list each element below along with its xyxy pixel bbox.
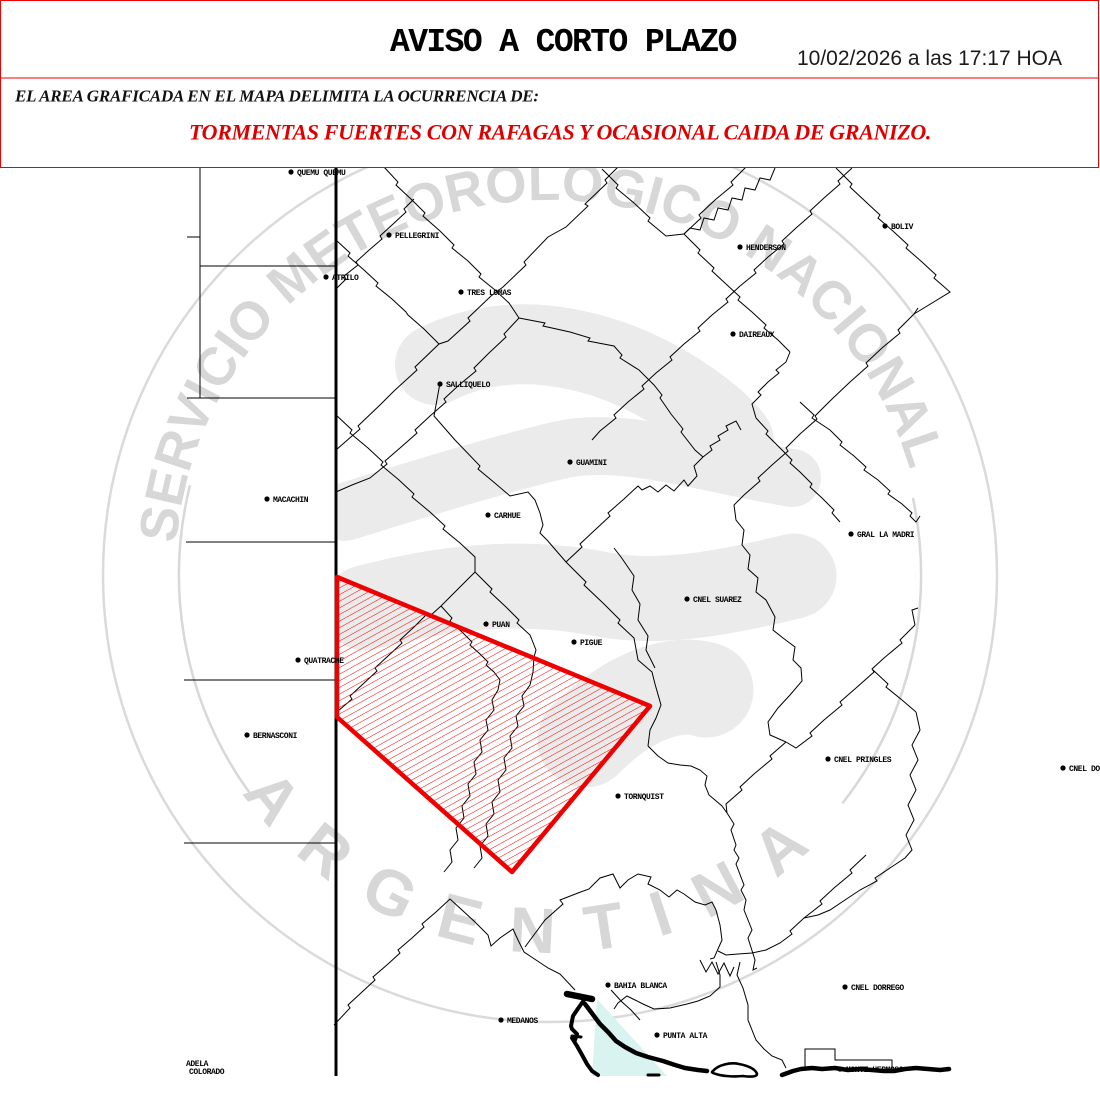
svg-text:TORNQUIST: TORNQUIST bbox=[624, 793, 664, 802]
svg-text:CNEL DORREGO: CNEL DORREGO bbox=[851, 984, 904, 993]
svg-text:HENDERSON: HENDERSON bbox=[746, 244, 786, 253]
svg-text:AVISO A CORTO PLAZO: AVISO A CORTO PLAZO bbox=[390, 24, 737, 61]
svg-text:COLORADO: COLORADO bbox=[189, 1068, 225, 1077]
svg-text:PIGUE: PIGUE bbox=[580, 639, 603, 648]
svg-text:GRAL LA MADRI: GRAL LA MADRI bbox=[857, 531, 915, 540]
svg-text:DAIREAUX: DAIREAUX bbox=[739, 331, 775, 340]
svg-text:10/02/2026 a las 17:17 HOA: 10/02/2026 a las 17:17 HOA bbox=[797, 47, 1062, 70]
svg-text:BOLIV: BOLIV bbox=[891, 223, 914, 232]
svg-text:PELLEGRINI: PELLEGRINI bbox=[395, 232, 440, 241]
svg-text:QUEMU QUEMU: QUEMU QUEMU bbox=[297, 169, 346, 178]
svg-text:CNEL PRINGLES: CNEL PRINGLES bbox=[834, 756, 892, 765]
svg-text:BAHIA BLANCA: BAHIA BLANCA bbox=[614, 982, 667, 991]
svg-text:MACACHIN: MACACHIN bbox=[273, 496, 309, 505]
svg-text:MEDANOS: MEDANOS bbox=[507, 1017, 538, 1026]
svg-text:TORMENTAS FUERTES CON RAFAGAS: TORMENTAS FUERTES CON RAFAGAS Y OCASIONA… bbox=[189, 120, 931, 145]
svg-text:CNEL DO: CNEL DO bbox=[1069, 765, 1100, 774]
svg-text:SALLIQUELO: SALLIQUELO bbox=[446, 381, 491, 390]
svg-text:PUAN: PUAN bbox=[492, 621, 510, 630]
svg-text:ATRILO: ATRILO bbox=[332, 274, 359, 283]
svg-text:GUAMINI: GUAMINI bbox=[576, 459, 607, 468]
svg-text:TRES LOMAS: TRES LOMAS bbox=[467, 289, 512, 298]
svg-text:QUATRACHE: QUATRACHE bbox=[304, 657, 344, 666]
svg-text:CNEL SUAREZ: CNEL SUAREZ bbox=[693, 596, 742, 605]
svg-text:MONTE HERMOSO: MONTE HERMOSO bbox=[846, 1066, 904, 1075]
svg-text:PUNTA ALTA: PUNTA ALTA bbox=[663, 1032, 708, 1041]
svg-text:EL AREA GRAFICADA EN EL MAPA D: EL AREA GRAFICADA EN EL MAPA DELIMITA LA… bbox=[14, 87, 539, 106]
svg-text:CARHUE: CARHUE bbox=[494, 512, 521, 521]
svg-text:BERNASCONI: BERNASCONI bbox=[253, 732, 298, 741]
